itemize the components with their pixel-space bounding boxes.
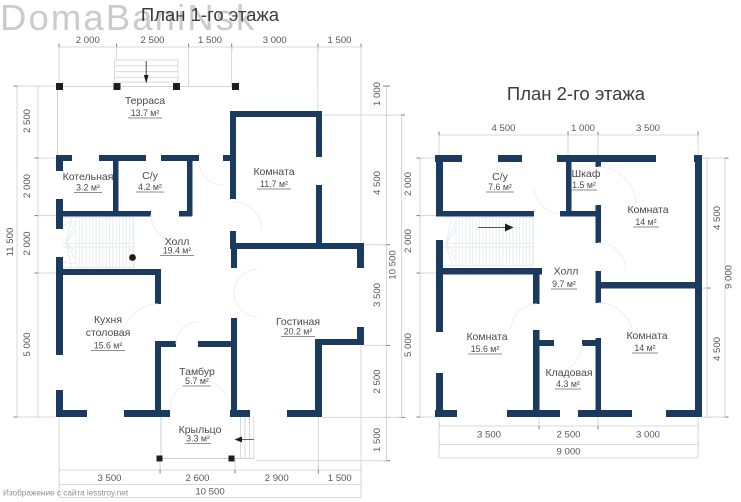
svg-text:4 500: 4 500 <box>712 206 723 230</box>
svg-text:План 2-го этажа: План 2-го этажа <box>507 83 646 104</box>
svg-text:15.6 м²: 15.6 м² <box>471 344 500 354</box>
svg-text:2 500: 2 500 <box>140 35 164 46</box>
svg-text:5.7 м²: 5.7 м² <box>185 376 209 386</box>
svg-text:столовая: столовая <box>86 327 131 339</box>
svg-text:Терраса: Терраса <box>125 95 165 107</box>
svg-text:11.7 м²: 11.7 м² <box>260 179 288 189</box>
svg-text:Котельная: Котельная <box>63 171 114 183</box>
svg-text:11 500: 11 500 <box>5 228 16 257</box>
svg-text:План 1-го этажа: План 1-го этажа <box>141 4 280 25</box>
svg-text:2 000: 2 000 <box>76 35 100 46</box>
svg-text:9 000: 9 000 <box>724 265 735 289</box>
svg-text:7.6 м²: 7.6 м² <box>488 182 512 192</box>
svg-text:Шкаф: Шкаф <box>572 168 601 180</box>
svg-text:3.2 м²: 3.2 м² <box>76 183 100 193</box>
svg-text:1 500: 1 500 <box>328 473 352 484</box>
svg-text:3 500: 3 500 <box>636 123 660 134</box>
svg-text:2 900: 2 900 <box>265 473 289 484</box>
svg-text:4.2 м²: 4.2 м² <box>138 182 162 192</box>
svg-text:1 500: 1 500 <box>372 428 383 452</box>
svg-text:Кухня: Кухня <box>94 314 122 326</box>
svg-text:2 500: 2 500 <box>22 109 33 133</box>
svg-text:9.7 м²: 9.7 м² <box>552 279 576 289</box>
svg-text:Изображение с сайта lesstroy.n: Изображение с сайта lesstroy.net <box>3 489 129 498</box>
svg-text:15.6 м²: 15.6 м² <box>94 341 123 351</box>
svg-text:4.3 м²: 4.3 м² <box>556 379 580 389</box>
svg-text:3 500: 3 500 <box>477 430 501 441</box>
svg-text:2 500: 2 500 <box>556 430 580 441</box>
svg-text:5 000: 5 000 <box>403 333 414 357</box>
svg-text:2 000: 2 000 <box>403 172 414 196</box>
svg-text:1 500: 1 500 <box>198 35 222 46</box>
svg-text:10 500: 10 500 <box>195 487 224 498</box>
svg-text:13.7 м²: 13.7 м² <box>131 108 160 118</box>
svg-text:3 500: 3 500 <box>372 283 383 307</box>
svg-text:Кладовая: Кладовая <box>545 367 592 379</box>
svg-text:2 500: 2 500 <box>372 369 383 393</box>
svg-text:Комната: Комната <box>466 331 507 343</box>
svg-text:Комната: Комната <box>626 330 667 342</box>
svg-text:Комната: Комната <box>627 204 668 216</box>
svg-text:4 500: 4 500 <box>372 171 383 195</box>
svg-text:3 000: 3 000 <box>636 430 660 441</box>
svg-text:4 500: 4 500 <box>712 337 723 361</box>
svg-text:10 500: 10 500 <box>388 250 399 279</box>
svg-text:Комната: Комната <box>253 166 294 178</box>
svg-text:1 000: 1 000 <box>571 123 595 134</box>
svg-text:14 м²: 14 м² <box>635 217 656 227</box>
svg-text:С/у: С/у <box>142 170 159 182</box>
svg-text:1.5 м²: 1.5 м² <box>572 180 596 190</box>
svg-text:3 000: 3 000 <box>263 35 287 46</box>
svg-text:4 500: 4 500 <box>491 123 515 134</box>
svg-text:14 м²: 14 м² <box>634 343 655 353</box>
svg-text:3.3 м²: 3.3 м² <box>186 434 210 444</box>
svg-text:2 600: 2 600 <box>185 473 209 484</box>
svg-text:1 000: 1 000 <box>372 82 383 106</box>
svg-text:20.2 м²: 20.2 м² <box>284 327 313 337</box>
svg-text:2 000: 2 000 <box>403 229 414 253</box>
svg-text:19.4 м²: 19.4 м² <box>163 246 192 256</box>
svg-text:2 000: 2 000 <box>22 231 33 255</box>
svg-text:9 000: 9 000 <box>556 447 580 458</box>
svg-text:3 500: 3 500 <box>97 473 121 484</box>
svg-text:1 500: 1 500 <box>327 35 351 46</box>
svg-text:5 000: 5 000 <box>22 332 33 356</box>
svg-text:2 000: 2 000 <box>22 174 33 198</box>
svg-text:Холл: Холл <box>554 266 579 278</box>
